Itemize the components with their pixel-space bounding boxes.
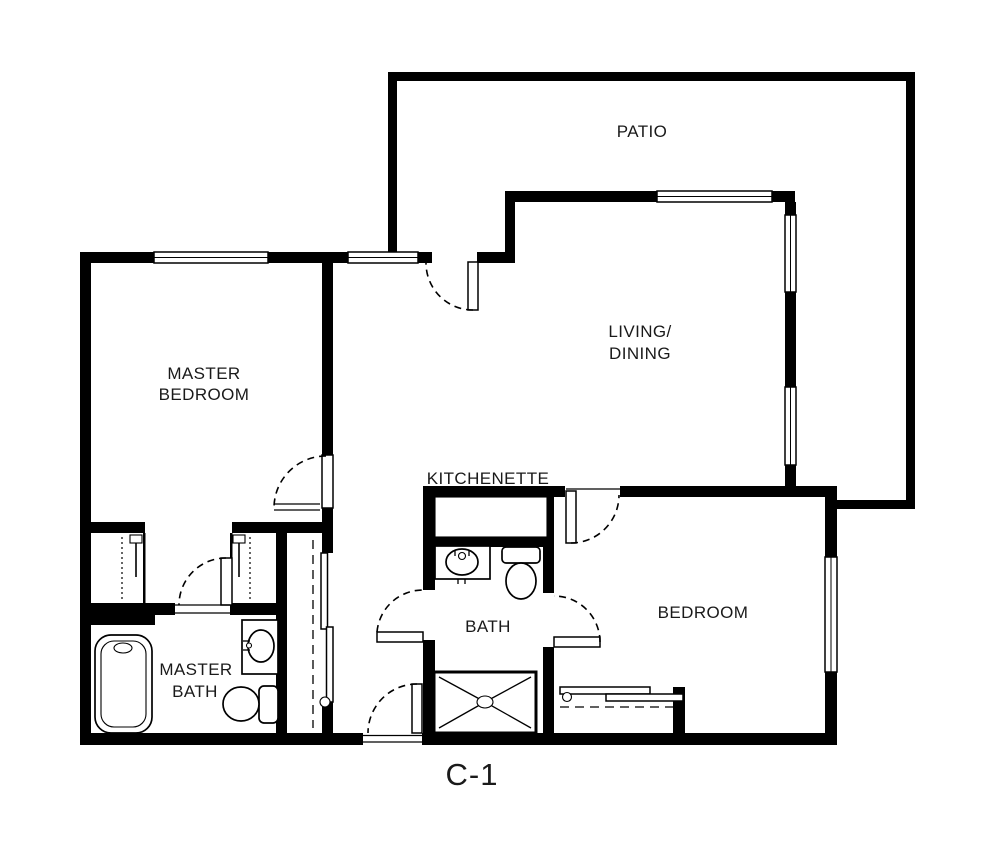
room-label-kitchenette: KITCHENETTE [427,469,549,488]
room-label-living-line1: LIVING/ [608,322,671,341]
floor-plan-c1: PATIO LIVING/ DINING MASTER BEDROOM KITC… [0,0,1000,859]
shower-icon [434,672,536,733]
window-bedroom [825,557,837,672]
room-label-patio: PATIO [617,122,668,141]
plan-label: C-1 [446,757,499,792]
wall-bedroom-right-a [825,486,837,557]
wall-mbr-east-a [322,252,333,455]
wall-top-b [268,252,348,263]
wall-dressing-a [91,522,145,533]
master-bath-toilet-icon [223,686,278,723]
floor-plan-page: PATIO LIVING/ DINING MASTER BEDROOM KITC… [0,0,1000,859]
patio-wall-top [388,72,915,81]
master-bath-sink-icon [242,620,278,674]
window-living-right-lower [785,387,796,465]
bathtub-icon [95,635,152,733]
wall-mbath-top-b [155,603,175,615]
bath-sink-icon [435,546,490,584]
room-label-bedroom: BEDROOM [658,603,749,622]
wall-mid-b [620,486,833,497]
patio-wall-bottom [830,500,915,509]
wall-bottom-b [422,733,837,745]
window-living-top [657,191,772,202]
wall-top-c [418,252,432,263]
kitchenette-counter-icon [435,497,547,537]
room-label-master-bath-line1: MASTER [159,660,232,679]
wall-bath-west-a [423,547,435,590]
closet-partition-left [143,533,146,603]
wall-mbath-top-a [91,603,155,625]
room-label-master-bath-line2: BATH [172,682,218,701]
wall-living-right-a [785,202,796,215]
patio-wall-right [906,72,915,509]
wall-top-a [80,252,154,263]
window-living-right-upper [785,215,796,292]
room-label-master-bedroom-line2: BEDROOM [159,385,250,404]
patio-wall-left [388,72,397,255]
window-master-bedroom [154,252,268,263]
room-label-master-bedroom-line1: MASTER [167,364,240,383]
wall-living-right-b [785,292,796,387]
window-living-west [348,252,418,263]
wall-living-top-a [505,191,657,202]
bath-toilet-icon [502,547,540,599]
wall-dressing-b [232,522,333,533]
room-label-bath: BATH [465,617,511,636]
room-label-living-line2: DINING [609,344,671,363]
wall-bottom-a [80,733,363,745]
wall-bath-east-b [543,647,554,733]
wall-left [80,252,91,745]
wall-living-top-b [772,191,795,202]
wall-mbath-top-c [230,603,276,615]
